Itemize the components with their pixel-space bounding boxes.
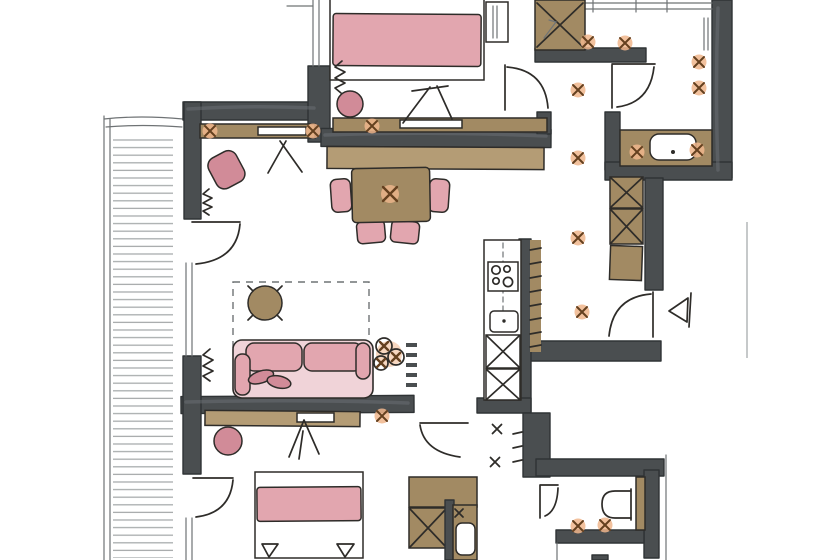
wc-wall-strip bbox=[636, 477, 645, 530]
terrace-door-top bbox=[192, 222, 240, 264]
ceiling-light-symbol bbox=[575, 305, 590, 320]
media-object bbox=[297, 413, 334, 422]
tv-easel-symbol-study bbox=[268, 141, 302, 173]
closet-unit-2[interactable] bbox=[610, 209, 643, 244]
bed-blanket-bottom bbox=[257, 487, 361, 522]
desk-chair bbox=[205, 147, 248, 192]
ceiling-light-symbol bbox=[571, 231, 586, 246]
basin bbox=[650, 134, 696, 160]
ceiling-light-symbol bbox=[571, 519, 586, 534]
cooktop bbox=[488, 262, 518, 291]
ceiling-light-symbol bbox=[365, 119, 380, 134]
ottoman[interactable] bbox=[214, 427, 242, 455]
wall-wc-right bbox=[644, 470, 659, 558]
sideboard-object bbox=[400, 120, 462, 128]
dark-x-symbol bbox=[491, 458, 500, 467]
top-wall-jambs bbox=[593, 0, 667, 12]
sofa-cushion-left bbox=[246, 343, 302, 371]
utility-closet bbox=[409, 477, 477, 560]
terrace-top-edge-2 bbox=[106, 126, 182, 128]
washing-machine[interactable] bbox=[456, 523, 475, 555]
wall-wc-bottom bbox=[556, 530, 644, 543]
top-wall-lines bbox=[585, 3, 712, 9]
round-stool bbox=[337, 91, 363, 117]
wall-hung-toilet[interactable] bbox=[602, 489, 631, 520]
sofa-armrest-right bbox=[356, 343, 370, 379]
bed-blanket-top bbox=[333, 13, 481, 66]
tiled-strip-hall bbox=[513, 432, 522, 462]
wall-entry bbox=[528, 341, 661, 361]
wall-closet-right bbox=[645, 178, 663, 290]
wall-left-mid bbox=[183, 356, 201, 474]
laptop bbox=[258, 127, 306, 135]
sofa-armrest-left bbox=[235, 354, 250, 395]
terrace-door-bottom bbox=[193, 478, 233, 517]
ceiling-light-symbol bbox=[571, 151, 586, 166]
floorplan-drawing bbox=[0, 0, 820, 560]
wall-study-left bbox=[184, 102, 201, 219]
ceiling-light-symbol bbox=[203, 124, 218, 139]
tiled-strip bbox=[530, 240, 541, 352]
tall-cabinet-2 bbox=[486, 369, 520, 400]
study bbox=[200, 124, 315, 215]
corridor-closets bbox=[609, 177, 643, 281]
tall-cabinet-1 bbox=[486, 335, 520, 368]
media-sideboard bbox=[205, 410, 360, 426]
radiator-squiggle-study bbox=[203, 189, 212, 215]
dining-chair-bottom-2[interactable] bbox=[390, 220, 420, 245]
ceiling-light-symbol bbox=[618, 36, 633, 51]
dark-x-symbol bbox=[493, 425, 502, 434]
hallway-door bbox=[420, 423, 468, 457]
kitchen-sink bbox=[490, 311, 518, 332]
window-right-top bbox=[704, 18, 708, 50]
ceiling-light-symbol bbox=[598, 518, 613, 533]
dining-set bbox=[330, 167, 450, 244]
bathroom-door bbox=[612, 64, 655, 108]
ceiling-light-symbol bbox=[306, 124, 321, 139]
terrace-decking-hatch bbox=[113, 138, 173, 558]
plant bbox=[374, 338, 404, 370]
bedroom-bottom bbox=[255, 472, 363, 558]
wc-door bbox=[540, 485, 558, 518]
utility-x-cabinet bbox=[409, 508, 447, 548]
radiator-squiggle-living bbox=[203, 349, 213, 381]
long-sideboard bbox=[327, 146, 544, 169]
wall-shelf bbox=[406, 343, 417, 387]
floorplan-canvas bbox=[0, 0, 820, 560]
sofa-cushion-right bbox=[304, 343, 362, 371]
dining-chair-left[interactable] bbox=[330, 178, 352, 212]
ceiling-light-symbol bbox=[375, 409, 390, 424]
window-left-upper bbox=[186, 263, 192, 356]
faucet-dot bbox=[671, 150, 675, 154]
bedroom-top-door bbox=[505, 65, 548, 110]
entrance-arrow-symbol bbox=[669, 293, 691, 327]
ceiling-light-symbol bbox=[692, 81, 707, 96]
window-bedroom-top bbox=[313, 0, 319, 66]
terrace bbox=[104, 116, 183, 560]
coffee-table bbox=[248, 286, 282, 320]
window-left-lower bbox=[186, 518, 192, 560]
terrace-top-edge-1 bbox=[104, 117, 183, 119]
closet-unit-1[interactable] bbox=[610, 177, 643, 208]
ceiling-light-symbol bbox=[692, 55, 707, 70]
ceiling-light-symbol bbox=[690, 143, 705, 158]
ceiling-light-symbol bbox=[571, 83, 586, 98]
wardrobe bbox=[535, 0, 585, 50]
closet-unit-3[interactable] bbox=[609, 245, 642, 280]
ceiling-light-symbol bbox=[581, 35, 596, 50]
entry-door bbox=[609, 292, 653, 337]
dining-chair-right[interactable] bbox=[428, 178, 450, 212]
wall-stub-bottom bbox=[592, 555, 608, 560]
dining-chair-bottom-1[interactable] bbox=[356, 220, 386, 244]
sofa[interactable] bbox=[233, 340, 373, 398]
ceiling-light-symbol bbox=[630, 145, 645, 160]
utility-cabinet-top bbox=[409, 477, 477, 507]
wall-study-top bbox=[183, 102, 320, 120]
